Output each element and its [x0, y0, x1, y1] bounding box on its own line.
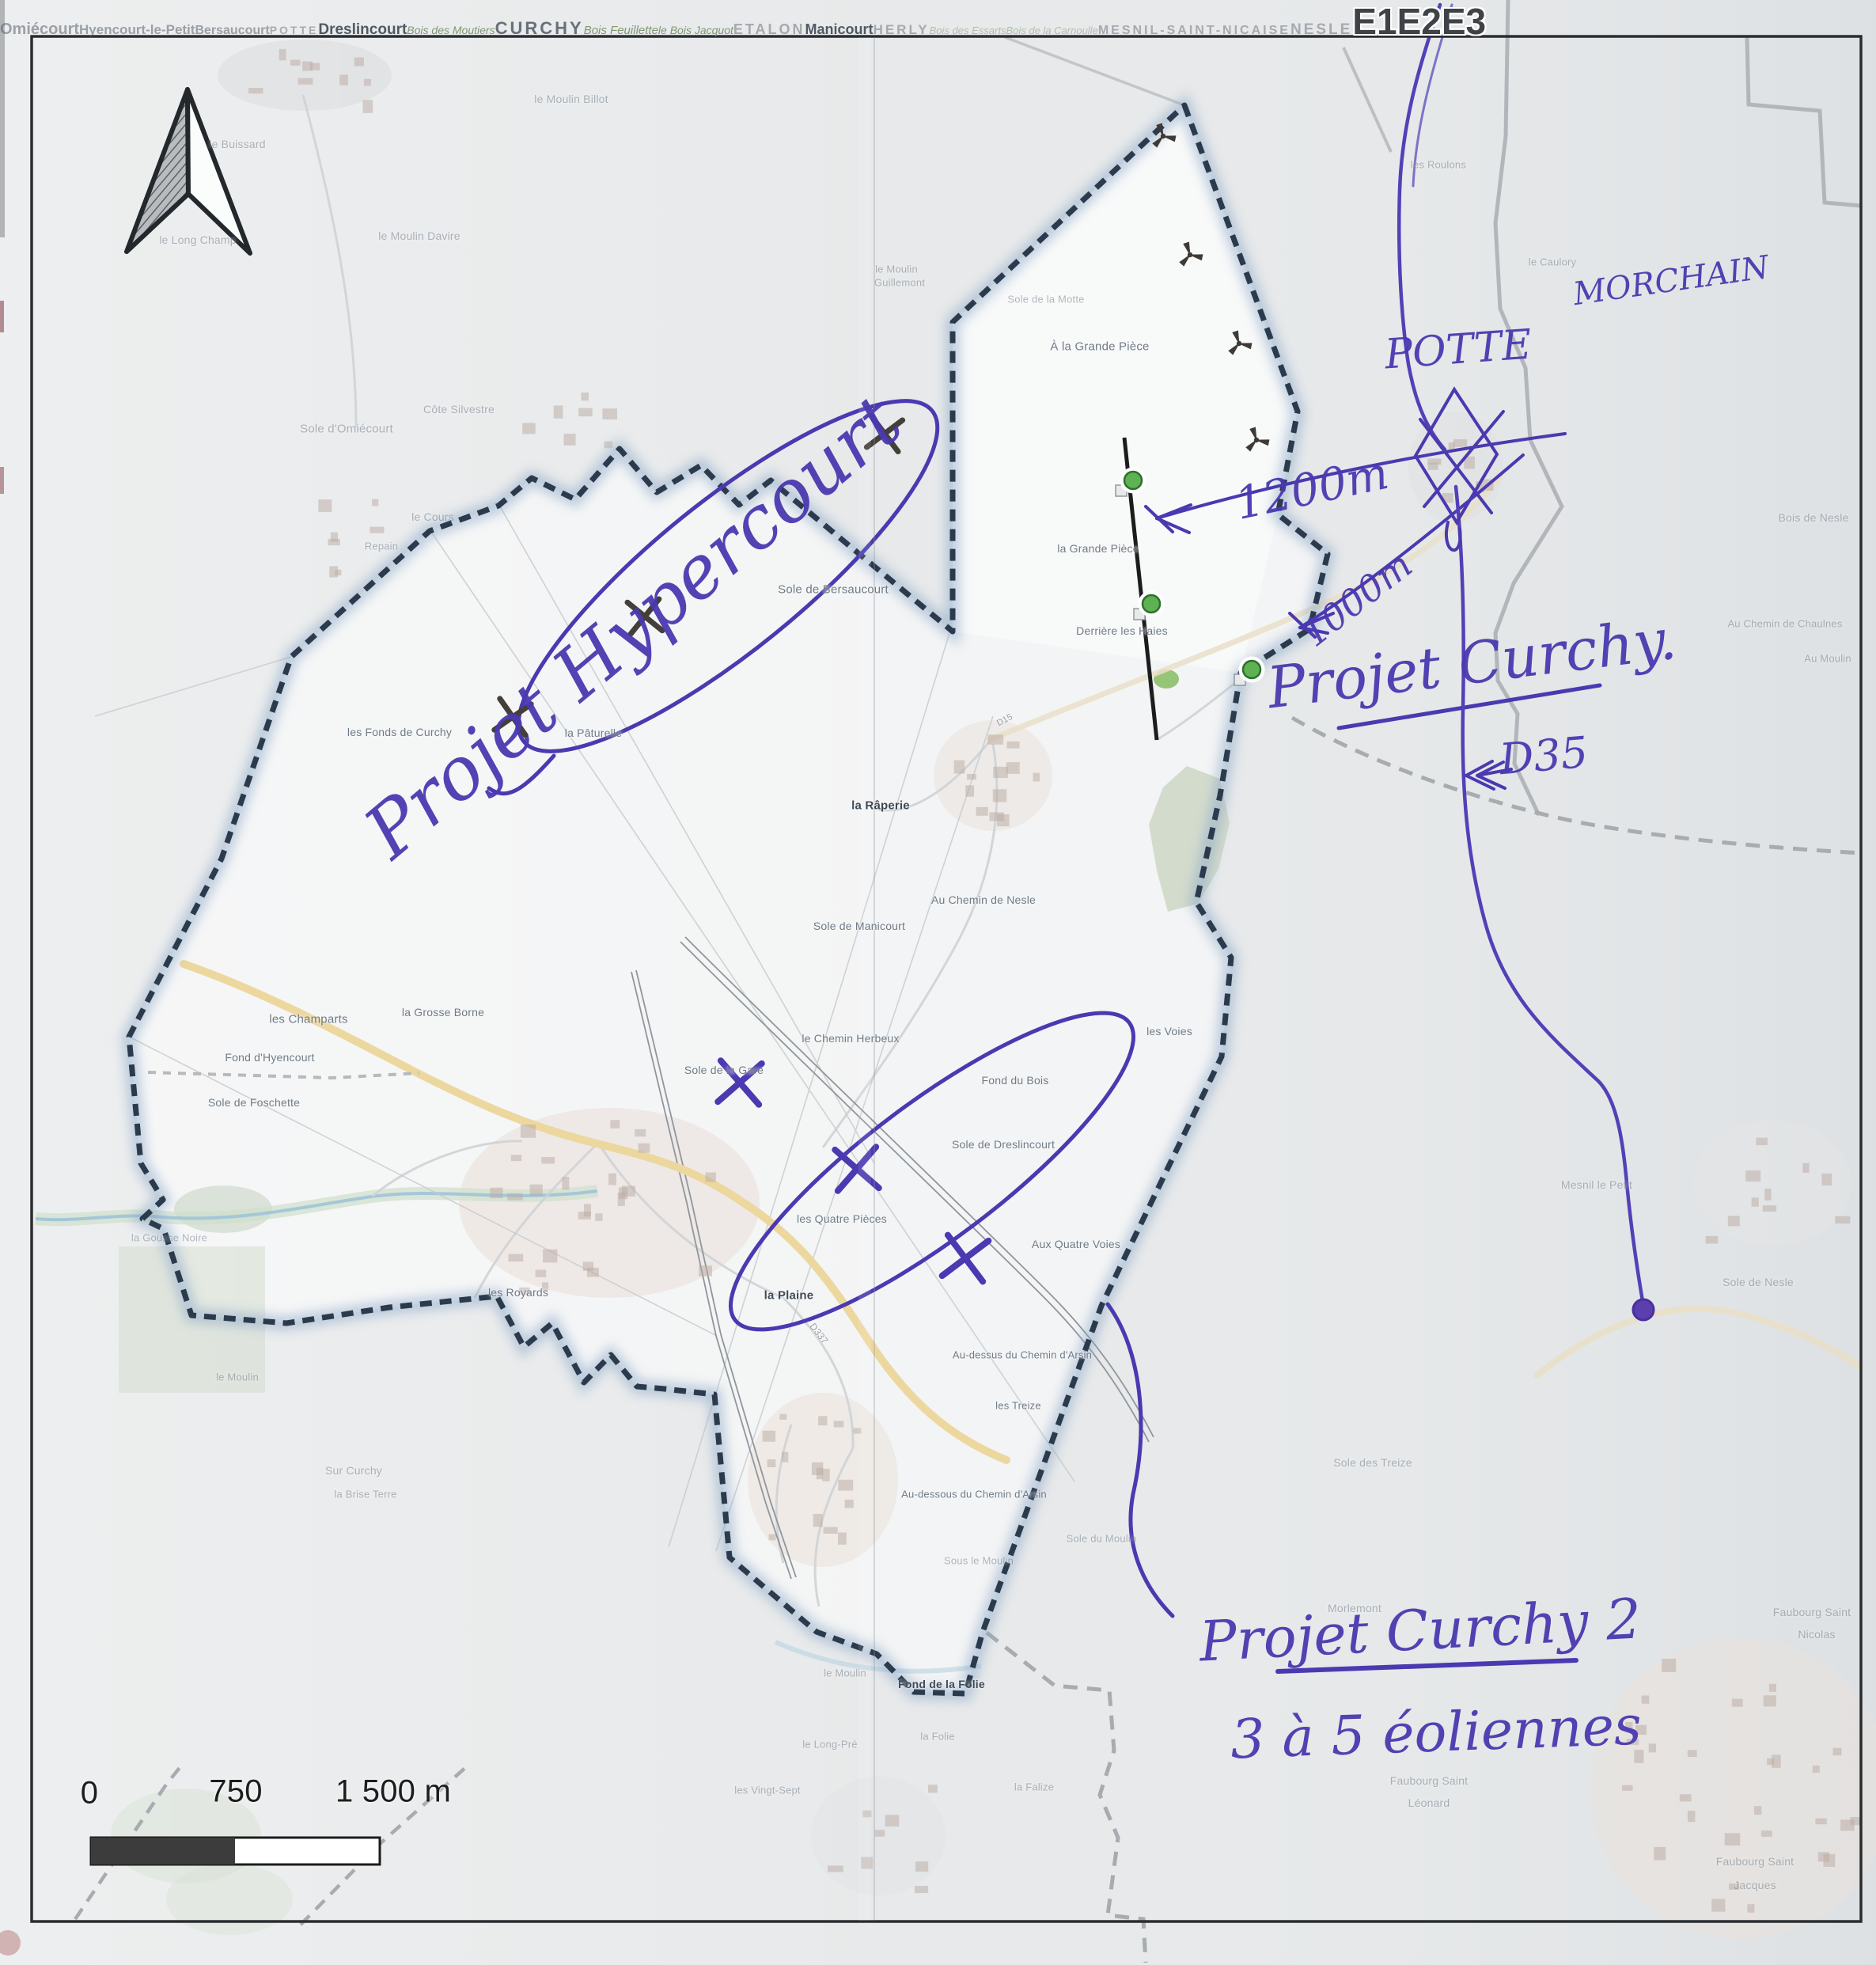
- map-graphics: [0, 0, 1876, 1965]
- building-footprint: [1688, 1750, 1697, 1757]
- building-footprint: [564, 434, 576, 446]
- building-footprint: [967, 774, 976, 780]
- building-footprint: [542, 1282, 548, 1291]
- building-footprint: [1813, 1766, 1820, 1773]
- building-footprint: [248, 88, 263, 93]
- building-footprint: [519, 1288, 529, 1295]
- building-footprint: [1815, 1819, 1826, 1825]
- building-footprint: [1642, 1695, 1650, 1703]
- building-footprint: [1761, 1830, 1772, 1837]
- building-footprint: [845, 1500, 854, 1508]
- building-footprint: [838, 1480, 853, 1491]
- building-footprint: [993, 767, 1008, 778]
- building-footprint: [635, 1129, 646, 1136]
- building-footprint: [1634, 1750, 1643, 1763]
- building-footprint: [1745, 1170, 1760, 1182]
- map-canvas: 0 750 1 500 m Omiécourtle Moulin Billotl…: [0, 0, 1876, 1965]
- building-footprint: [290, 60, 301, 66]
- building-footprint: [1427, 458, 1441, 465]
- building-footprint: [875, 1830, 885, 1836]
- building-footprint: [1824, 1854, 1836, 1867]
- building-footprint: [1732, 1699, 1743, 1707]
- building-footprint: [1688, 1811, 1696, 1822]
- building-footprint: [364, 79, 371, 86]
- building-footprint: [370, 527, 384, 533]
- building-footprint: [522, 423, 535, 434]
- building-footprint: [372, 499, 378, 506]
- building-footprint: [1680, 1794, 1692, 1801]
- building-footprint: [339, 74, 348, 85]
- building-footprint: [1763, 1205, 1776, 1212]
- building-footprint: [699, 1265, 712, 1276]
- building-footprint: [363, 100, 373, 112]
- building-footprint: [602, 408, 617, 419]
- building-footprint: [997, 814, 1010, 826]
- building-footprint: [1627, 1739, 1639, 1745]
- building-footprint: [822, 1469, 829, 1481]
- building-footprint: [1821, 1174, 1832, 1185]
- building-footprint: [1747, 1904, 1754, 1913]
- building-footprint: [298, 78, 313, 85]
- building-footprint: [1850, 1817, 1859, 1825]
- building-footprint: [554, 405, 563, 418]
- building-footprint: [915, 1886, 928, 1893]
- building-footprint: [1764, 1695, 1776, 1706]
- building-footprint: [543, 1250, 557, 1263]
- building-footprint: [1725, 1833, 1741, 1846]
- building-footprint: [1769, 1684, 1776, 1692]
- building-footprint: [812, 1462, 823, 1475]
- building-footprint: [1729, 1883, 1739, 1890]
- building-footprint: [828, 1865, 843, 1872]
- building-footprint: [1662, 1659, 1676, 1672]
- building-footprint: [813, 1514, 823, 1527]
- building-footprint: [618, 1193, 625, 1206]
- building-footprint: [310, 63, 320, 70]
- building-footprint: [331, 533, 338, 542]
- building-footprint: [507, 1193, 522, 1201]
- building-footprint: [279, 49, 286, 60]
- building-footprint: [1706, 1236, 1718, 1243]
- building-footprint: [521, 1125, 536, 1138]
- building-footprint: [838, 1533, 847, 1545]
- building-footprint: [1006, 762, 1020, 774]
- building-footprint: [1453, 439, 1467, 447]
- building-footprint: [639, 1144, 650, 1153]
- building-footprint: [767, 1459, 776, 1467]
- building-footprint: [1625, 1722, 1632, 1730]
- building-footprint: [318, 499, 332, 512]
- building-footprint: [1835, 1216, 1850, 1223]
- building-footprint: [1649, 1743, 1656, 1752]
- building-footprint: [763, 1431, 775, 1442]
- building-footprint: [779, 1414, 786, 1420]
- building-footprint: [1635, 1725, 1647, 1735]
- building-footprint: [335, 570, 341, 575]
- building-footprint: [354, 57, 364, 66]
- building-footprint: [824, 1527, 838, 1534]
- building-footprint: [782, 1452, 788, 1462]
- building-footprint: [1832, 1748, 1841, 1755]
- building-footprint: [1033, 773, 1040, 782]
- building-footprint: [587, 1268, 599, 1277]
- building-footprint: [993, 789, 1006, 802]
- building-footprint: [834, 1421, 844, 1428]
- building-footprint: [595, 1213, 602, 1220]
- building-footprint: [530, 1185, 543, 1196]
- building-footprint: [1006, 742, 1019, 749]
- building-footprint: [706, 1172, 716, 1182]
- building-footprint: [954, 761, 965, 774]
- building-footprint: [1764, 1189, 1771, 1201]
- building-footprint: [1757, 1138, 1768, 1145]
- building-footprint: [1711, 1899, 1725, 1911]
- building-footprint: [1654, 1847, 1666, 1861]
- building-footprint: [885, 1815, 900, 1827]
- building-footprint: [563, 1177, 570, 1189]
- scale-bar: [91, 1838, 380, 1864]
- building-footprint: [976, 807, 988, 816]
- building-footprint: [965, 785, 974, 796]
- building-footprint: [1728, 1216, 1740, 1226]
- building-footprint: [604, 442, 612, 449]
- building-footprint: [578, 1212, 591, 1220]
- building-footprint: [1754, 1806, 1761, 1815]
- building-footprint: [541, 1157, 555, 1163]
- building-footprint: [608, 1174, 616, 1185]
- building-footprint: [578, 408, 593, 416]
- building-footprint: [1622, 1785, 1633, 1791]
- building-footprint: [769, 1534, 776, 1541]
- building-footprint: [818, 1416, 827, 1425]
- building-footprint: [915, 1861, 928, 1872]
- building-footprint: [610, 1120, 620, 1129]
- building-footprint: [536, 1270, 547, 1277]
- building-footprint: [928, 1785, 938, 1792]
- building-footprint: [1772, 1754, 1781, 1767]
- building-footprint: [1802, 1163, 1809, 1173]
- building-footprint: [987, 734, 1003, 745]
- building-footprint: [1752, 1197, 1759, 1206]
- building-footprint: [511, 1155, 521, 1161]
- building-footprint: [509, 1254, 524, 1262]
- building-footprint: [581, 393, 589, 400]
- building-footprint: [490, 1188, 502, 1198]
